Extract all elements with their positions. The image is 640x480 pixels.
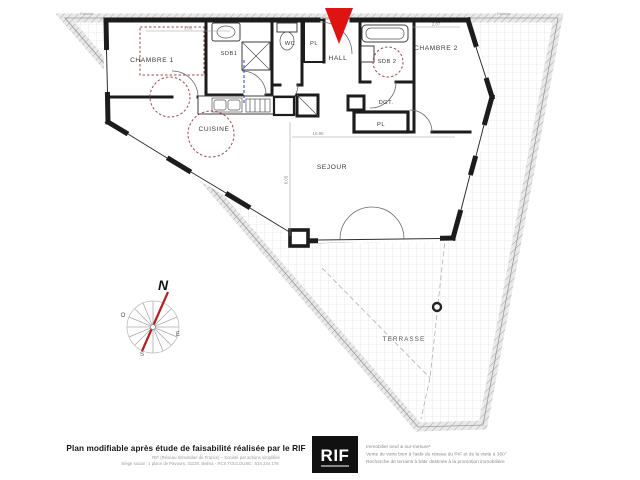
dim-sejour-width: 10.90	[313, 131, 325, 136]
compass-south-label: S	[140, 352, 144, 358]
room-label-pl-hall: PL	[310, 41, 318, 47]
room-label-wc: WC	[285, 41, 295, 47]
site-label-top-left: Palmier	[80, 11, 94, 16]
kitchen-appliance	[274, 97, 294, 115]
compass-north-label: N	[158, 277, 169, 293]
rif-logo-text: RIF	[321, 446, 350, 465]
room-label-chambre1: CHAMBRE 1	[130, 57, 174, 64]
dim-sejour-depth: 6.05	[284, 175, 289, 184]
facade-post	[290, 230, 308, 246]
footer-service-line2: Vente de votre bien à l'aide du réseau d…	[366, 452, 507, 458]
apartment: 3.80 2.87 10.90 6.05 CHAMBRE 1 SDB1 WC P…	[106, 20, 492, 246]
room-label-dgt: DGT.	[379, 100, 394, 106]
floor-plan-canvas: TERRASSE Palmier Palmier	[0, 0, 640, 480]
footer-address-line: Siège social : 1 place de Pavours, 31130…	[121, 461, 279, 466]
footer: Plan modifiable après étude de faisabili…	[66, 436, 506, 473]
footer-service-line1: Immobilier neuf & sur-mesure*	[366, 444, 431, 450]
footer-service-line3: Recherche de terrains à bâtir destinés à…	[366, 459, 505, 465]
compass-west-label: O	[121, 313, 126, 319]
floor-plan-page: TERRASSE Palmier Palmier	[0, 0, 640, 480]
washbasin-sdb2	[361, 46, 374, 62]
room-label-cuisine: CUISINE	[199, 126, 230, 133]
wc-toilet	[277, 23, 297, 32]
room-label-chambre2: CHAMBRE 2	[414, 45, 458, 52]
compass-east-label: E	[176, 332, 180, 338]
rif-logo: RIF	[312, 436, 358, 473]
room-label-sdb1: SDB1	[221, 51, 238, 57]
room-label-pl-dgt: PL	[377, 122, 385, 128]
compass-rose-icon: N O E S	[121, 277, 180, 358]
room-label-sdb2: SDB 2	[378, 59, 397, 65]
footer-title: Plan modifiable après étude de faisabili…	[66, 444, 305, 453]
bathtub-sdb2	[362, 25, 408, 42]
duct-shaft	[348, 96, 364, 110]
site-label-top-right: Palmier	[497, 11, 511, 16]
room-label-sejour: SEJOUR	[317, 164, 347, 171]
room-label-hall: HALL	[329, 55, 348, 62]
footer-company-line: RIF (Réseau Immobilier de France) – Soci…	[152, 455, 280, 460]
dim-chambre1: 3.80	[184, 26, 193, 31]
terrace-post-marker	[433, 303, 441, 311]
room-label-terrasse: TERRASSE	[383, 336, 425, 343]
dim-chambre2: 2.87	[432, 22, 441, 27]
